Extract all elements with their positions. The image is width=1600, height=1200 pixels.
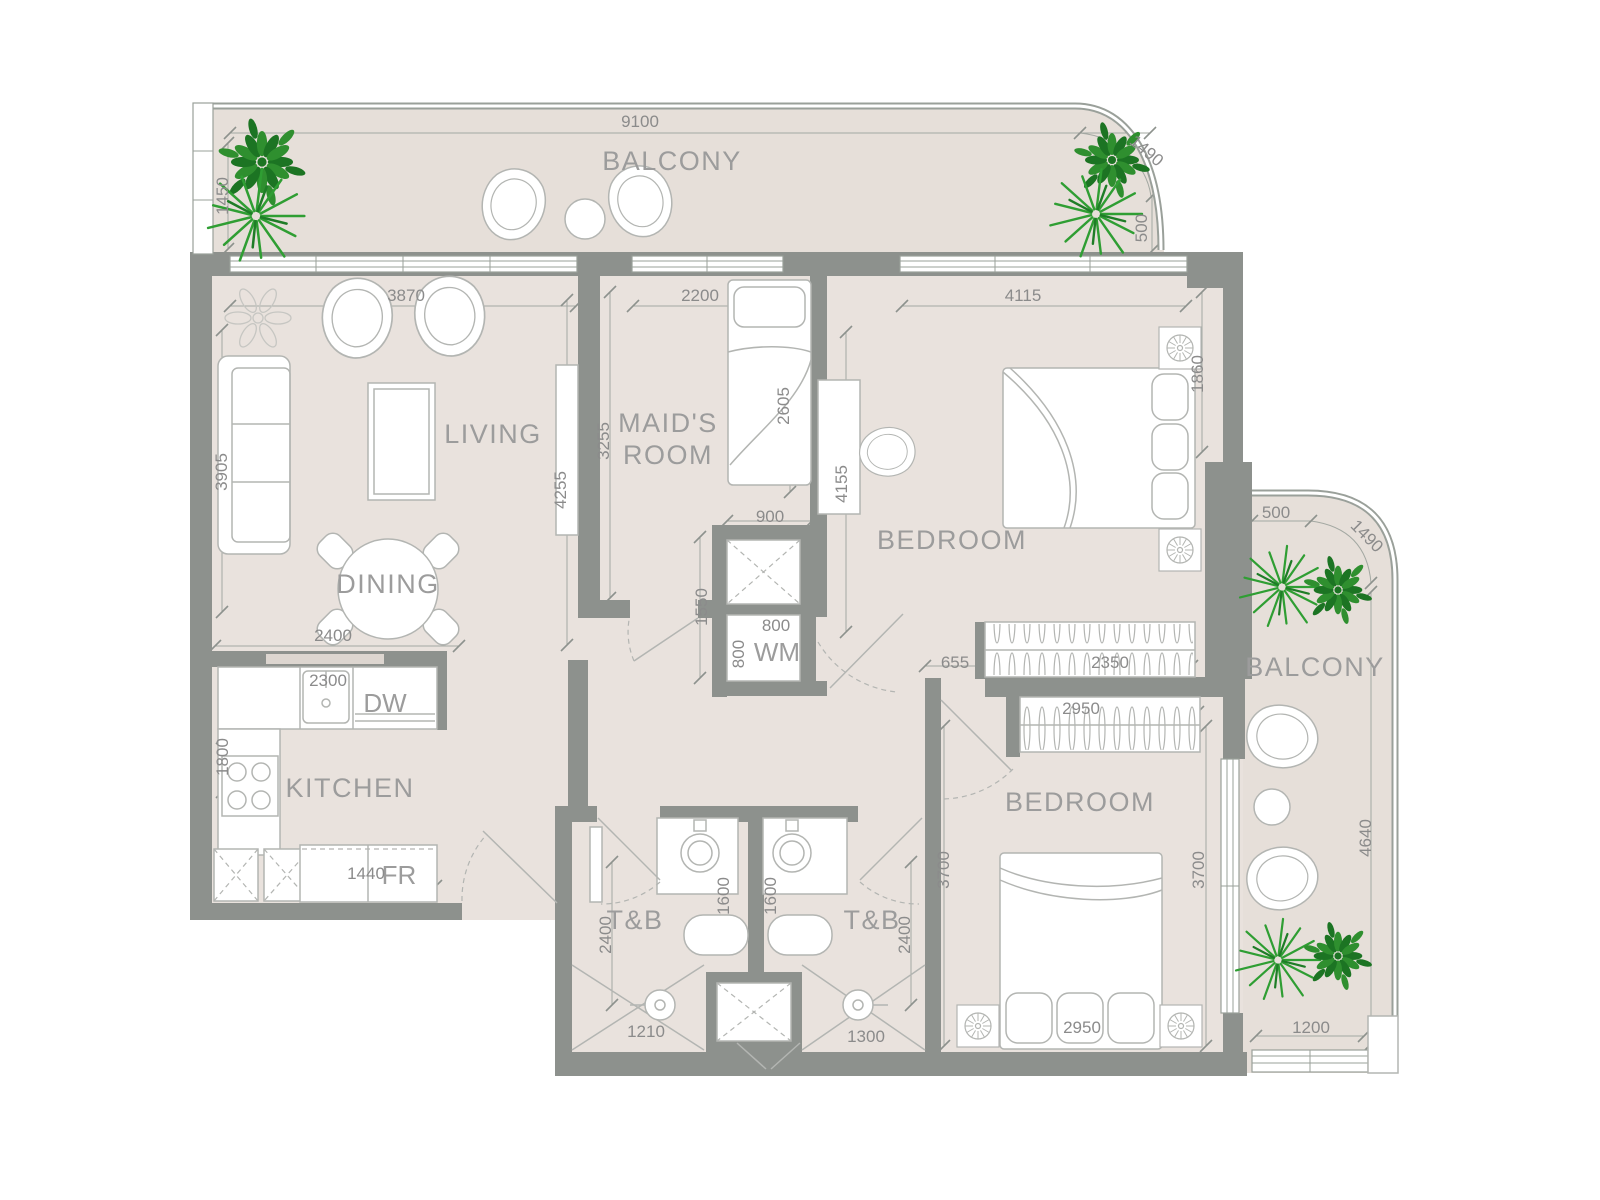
dim-label: 500	[1262, 503, 1290, 522]
dishwasher-label: DW	[363, 688, 407, 718]
bathtub-right	[768, 915, 832, 955]
floor-plan-page: BALCONY LIVING MAID'S ROOM BEDROOM DININ…	[0, 0, 1600, 1200]
wardrobe-bottom	[1020, 697, 1200, 752]
dim-label: 500	[1132, 214, 1151, 242]
tb-right-label: T&B	[843, 905, 900, 935]
fridge-label: FR	[382, 860, 417, 890]
dim-label: 1450	[213, 177, 232, 215]
dim-label: 2950	[1063, 1018, 1101, 1037]
dim-label: 1600	[761, 877, 780, 915]
dim-label: 1860	[1188, 355, 1207, 393]
dim-label: 800	[729, 640, 748, 668]
dim-label: 4155	[832, 465, 851, 503]
tb-left-label: T&B	[606, 905, 663, 935]
dim-label: 3905	[212, 453, 231, 491]
dim-label: 4255	[551, 471, 570, 509]
dim-label: 2400	[314, 626, 352, 645]
bedroom-bottom-label: BEDROOM	[1005, 787, 1155, 817]
dim-label: 1200	[1292, 1018, 1330, 1037]
maids-room-label-line2: ROOM	[623, 440, 713, 470]
double-bed-top	[1003, 368, 1195, 528]
dim-label: 655	[941, 653, 969, 672]
bedroom-top-label: BEDROOM	[877, 525, 1027, 555]
dim-label: 1300	[847, 1027, 885, 1046]
dim-label: 1550	[692, 588, 711, 626]
dim-label: 2400	[895, 916, 914, 954]
dim-label: 1440	[347, 864, 385, 883]
balcony-top-label: BALCONY	[602, 146, 742, 176]
ceiling-fan-icon	[1159, 529, 1201, 571]
dim-label: 4640	[1356, 819, 1375, 857]
kitchen-label: KITCHEN	[285, 773, 414, 803]
dim-label: 3870	[387, 286, 425, 305]
dim-label: 2605	[774, 387, 793, 425]
dim-label: 4115	[1005, 286, 1042, 305]
balcony-side-table	[565, 199, 605, 239]
living-label: LIVING	[444, 419, 542, 449]
dim-label: 1800	[213, 738, 232, 776]
dim-label: 2300	[309, 671, 347, 690]
bathtub-left	[684, 915, 748, 955]
bathroom-cabinet	[590, 827, 602, 902]
balcony-right-label: BALCONY	[1245, 652, 1385, 682]
dim-label: 1210	[627, 1022, 665, 1041]
balcony-side-table	[1254, 789, 1290, 825]
dim-label: 3700	[1189, 851, 1208, 889]
dim-label: 2400	[596, 916, 615, 954]
balcony-top-floor	[196, 103, 1164, 252]
dining-label: DINING	[336, 569, 440, 599]
single-bed	[728, 280, 811, 485]
dim-label: 800	[762, 616, 790, 635]
ceiling-fan-icon	[1160, 1005, 1202, 1047]
maids-room-label-line1: MAID'S	[618, 408, 718, 438]
wardrobe-top	[985, 622, 1195, 677]
central-shaft	[717, 983, 791, 1041]
floor-plan-drawing: BALCONY LIVING MAID'S ROOM BEDROOM DININ…	[0, 0, 1600, 1200]
dim-label: 2200	[681, 286, 719, 305]
dim-label: 2350	[1091, 653, 1129, 672]
dim-label: 1600	[714, 877, 733, 915]
ceiling-fan-icon	[957, 1005, 999, 1047]
balcony-corner-pillar	[1368, 1016, 1398, 1073]
dim-label: 3255	[594, 422, 613, 460]
washing-machine-label: WM	[754, 637, 800, 667]
dim-label: 2950	[1062, 699, 1100, 718]
coffee-table	[368, 383, 435, 500]
dim-label: 3700	[934, 851, 953, 889]
dim-label: 900	[756, 507, 784, 526]
dim-label: 9100	[621, 112, 659, 131]
